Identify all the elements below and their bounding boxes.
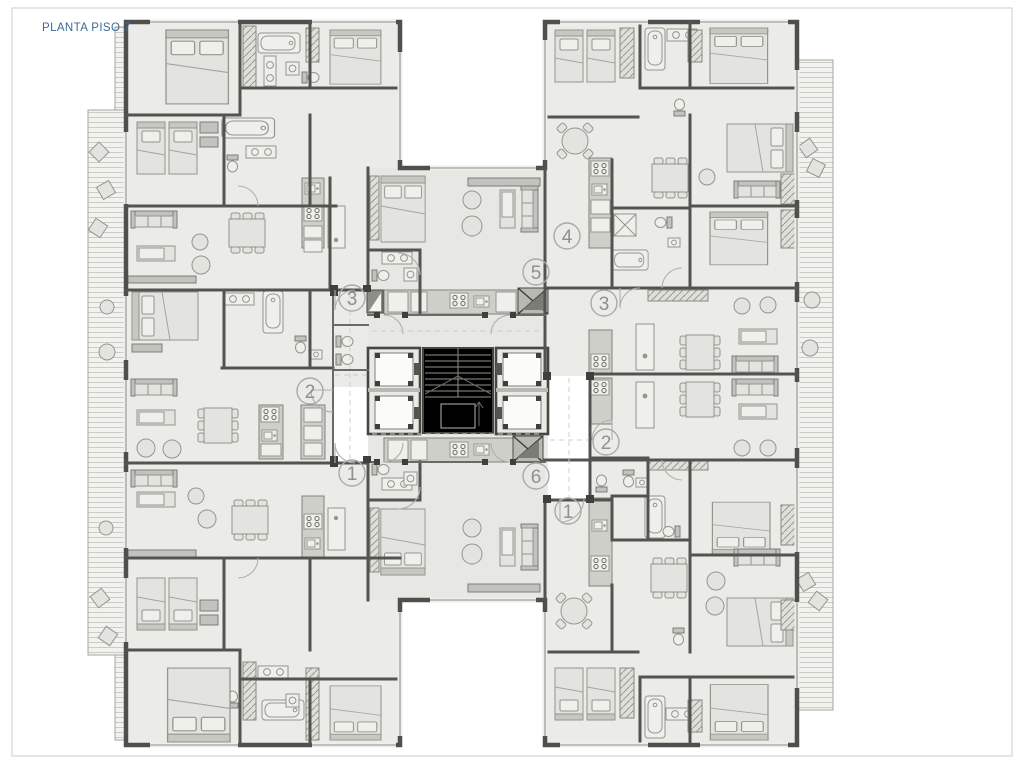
island-sink xyxy=(643,394,648,399)
wardrobe-icon xyxy=(781,505,795,545)
lounge-chair-icon xyxy=(137,492,175,507)
wardrobe-icon xyxy=(243,26,256,88)
cabinet xyxy=(591,218,610,232)
double-bed-icon xyxy=(381,176,425,242)
toilet-icon xyxy=(673,628,684,645)
bathtub-icon xyxy=(258,33,300,53)
svg-text:6: 6 xyxy=(531,467,542,488)
double-bed-icon xyxy=(132,292,198,340)
pouf xyxy=(706,597,724,615)
kitchen-island xyxy=(636,382,654,428)
sofa-icon xyxy=(521,186,538,232)
dining-table-icon xyxy=(652,158,688,198)
island-sink xyxy=(643,354,648,359)
single-bed-icon xyxy=(555,668,583,720)
dining-table-icon xyxy=(680,382,720,417)
round-table-icon xyxy=(555,592,592,629)
elevator-icon xyxy=(496,348,548,434)
single-bed-icon xyxy=(555,30,583,82)
shaft-icon xyxy=(513,436,543,462)
plan-title: PLANTA PISO 7 xyxy=(42,22,131,34)
balcony-right xyxy=(797,60,833,710)
double-bed-icon xyxy=(710,212,768,265)
lounge-chair-icon xyxy=(137,410,175,425)
stove-icon xyxy=(591,354,609,369)
washer-icon xyxy=(286,62,299,75)
sideboard xyxy=(468,584,540,592)
double-bed-icon xyxy=(330,686,381,740)
sideboard xyxy=(128,550,196,557)
svg-text:5: 5 xyxy=(531,263,542,284)
sink-icon xyxy=(310,350,322,359)
balcony-planter xyxy=(804,292,820,308)
stove-icon xyxy=(261,407,279,422)
pouf xyxy=(734,440,750,456)
nightstand xyxy=(200,600,218,611)
wardrobe-icon xyxy=(620,28,634,78)
svg-text:1: 1 xyxy=(563,502,574,523)
lounge-chair-icon xyxy=(739,329,777,344)
bathtub-icon xyxy=(645,696,665,738)
pouf xyxy=(163,440,181,458)
stove-icon xyxy=(591,380,609,395)
lounge-chair-icon xyxy=(500,528,515,566)
wardrobe-icon xyxy=(620,668,634,718)
toilet-icon xyxy=(596,475,607,492)
pouf xyxy=(137,439,155,457)
washer-icon xyxy=(286,694,299,707)
single-bed-icon xyxy=(587,668,615,720)
wardrobe-icon xyxy=(370,176,379,240)
sink-icon xyxy=(668,238,680,247)
toilet-icon xyxy=(227,155,238,172)
dining-table-icon xyxy=(232,500,268,540)
dining-table-icon xyxy=(680,335,720,370)
double-bed-icon xyxy=(710,685,768,740)
nightstand xyxy=(200,137,218,147)
cabinet xyxy=(304,240,322,252)
toilet-icon xyxy=(655,217,672,228)
double-bed-icon xyxy=(712,502,770,555)
toilet-icon xyxy=(623,470,634,487)
svg-text:2: 2 xyxy=(305,382,316,403)
sideboard xyxy=(468,178,540,186)
kitchen-counter xyxy=(589,498,612,586)
cabinet xyxy=(304,426,322,440)
pouf xyxy=(463,519,481,537)
cabinet xyxy=(411,440,427,460)
double-bed-icon xyxy=(330,30,381,84)
ac-unit-icon xyxy=(367,290,383,313)
floorplan-page: 3 2 1 4 5 6 3 2 1 PLANTA PISO 7 xyxy=(0,0,1024,768)
sideboard xyxy=(128,276,196,283)
pouf xyxy=(707,572,725,590)
bathtub-icon xyxy=(263,291,283,333)
stove-icon xyxy=(304,206,322,221)
double-bed-icon xyxy=(168,668,230,742)
double-sink-icon xyxy=(382,252,412,264)
pouf xyxy=(699,169,715,185)
pouf xyxy=(188,488,204,504)
wardrobe-icon xyxy=(781,174,795,204)
floorplan-drawing: 3 2 1 4 5 6 3 2 1 PLANTA PISO 7 xyxy=(0,0,1024,768)
wardrobe-icon xyxy=(243,662,256,720)
single-bed-icon xyxy=(169,122,197,174)
pouf xyxy=(760,440,776,456)
island-sink xyxy=(334,516,338,520)
svg-text:3: 3 xyxy=(347,289,358,310)
bathtub-icon xyxy=(612,250,648,270)
kitchen-sink-icon xyxy=(262,430,277,441)
kitchen-sink-icon xyxy=(305,183,320,194)
sofa-icon xyxy=(131,211,177,228)
kitchen-island xyxy=(328,508,345,550)
elevator-icon xyxy=(368,348,420,434)
round-table-icon xyxy=(556,122,593,159)
cabinet xyxy=(304,408,322,422)
wardrobe-icon xyxy=(306,28,319,62)
cabinet xyxy=(388,440,408,460)
svg-text:4: 4 xyxy=(562,227,573,248)
lounge-chair-icon xyxy=(739,404,777,419)
double-bed-icon xyxy=(381,509,425,575)
single-bed-icon xyxy=(587,30,615,82)
dining-table-icon xyxy=(198,408,238,443)
stove-icon xyxy=(450,442,468,457)
sideboard xyxy=(648,290,708,301)
wardrobe-icon xyxy=(781,600,795,630)
washer-icon xyxy=(404,472,417,485)
toilet-icon xyxy=(372,270,389,281)
single-bed-icon xyxy=(137,122,165,174)
sink-icon xyxy=(636,478,648,487)
cabinet xyxy=(496,292,516,312)
pouf xyxy=(462,544,482,564)
single-bed-icon xyxy=(169,578,197,630)
nightstand xyxy=(200,615,218,625)
sofa-icon xyxy=(131,470,177,487)
double-sink-icon xyxy=(246,146,276,158)
dining-table-icon xyxy=(229,213,265,253)
dining-table-icon xyxy=(651,558,687,598)
double-bed-icon xyxy=(727,124,793,172)
wardrobe-icon xyxy=(781,210,795,248)
balcony-planter xyxy=(99,344,115,360)
double-bed-icon xyxy=(166,30,228,104)
pouf xyxy=(734,298,750,314)
double-bed-icon xyxy=(710,28,768,83)
cabinet xyxy=(304,443,322,456)
nightstand xyxy=(200,122,218,133)
toilet-icon xyxy=(663,526,680,537)
double-sink-icon xyxy=(224,293,254,305)
kitchen-sink-icon xyxy=(474,296,489,307)
svg-text:1: 1 xyxy=(347,464,358,485)
cabinet xyxy=(261,444,281,456)
kitchen-sink-icon xyxy=(592,184,607,195)
pouf xyxy=(198,510,216,528)
toilet-icon xyxy=(295,336,306,353)
double-sink-icon xyxy=(258,666,288,678)
svg-text:2: 2 xyxy=(601,433,612,454)
bathtub-icon xyxy=(645,28,665,70)
stove-icon xyxy=(450,293,468,308)
kitchen-sink-icon xyxy=(474,444,489,455)
pouf xyxy=(192,234,208,250)
cabinet xyxy=(304,226,322,238)
sofa-icon xyxy=(734,549,780,566)
stove-icon xyxy=(304,514,322,529)
pouf xyxy=(192,256,210,274)
kitchen-sink-icon xyxy=(305,538,320,549)
cabinet xyxy=(591,200,610,214)
pouf xyxy=(760,297,776,313)
sofa-icon xyxy=(734,181,780,198)
wardrobe-icon xyxy=(370,508,379,572)
pouf xyxy=(462,216,482,236)
sofa-icon xyxy=(521,524,538,570)
stove-icon xyxy=(591,161,609,176)
bench xyxy=(132,344,162,352)
kitchen-sink-icon xyxy=(592,520,607,531)
cabinet xyxy=(388,292,408,312)
lounge-chair-icon xyxy=(500,190,515,228)
balcony-planter xyxy=(802,340,818,356)
toilet-icon xyxy=(674,99,685,116)
toilet-icon xyxy=(372,464,389,475)
lounge-chair-icon xyxy=(137,246,175,261)
pouf xyxy=(463,191,481,209)
stove-icon xyxy=(591,556,609,571)
balcony-planter xyxy=(100,300,114,314)
kitchen-island xyxy=(636,324,654,370)
washer-icon xyxy=(404,268,417,281)
single-bed-icon xyxy=(137,578,165,630)
bathtub-icon xyxy=(222,118,275,138)
sofa-icon xyxy=(732,379,778,396)
island-sink xyxy=(334,238,338,242)
balcony-planter xyxy=(99,521,113,535)
stairs-icon xyxy=(423,348,493,433)
svg-text:3: 3 xyxy=(599,294,610,315)
sofa-icon xyxy=(131,379,177,396)
sofa-icon xyxy=(732,356,778,373)
double-sink-icon xyxy=(264,56,276,86)
